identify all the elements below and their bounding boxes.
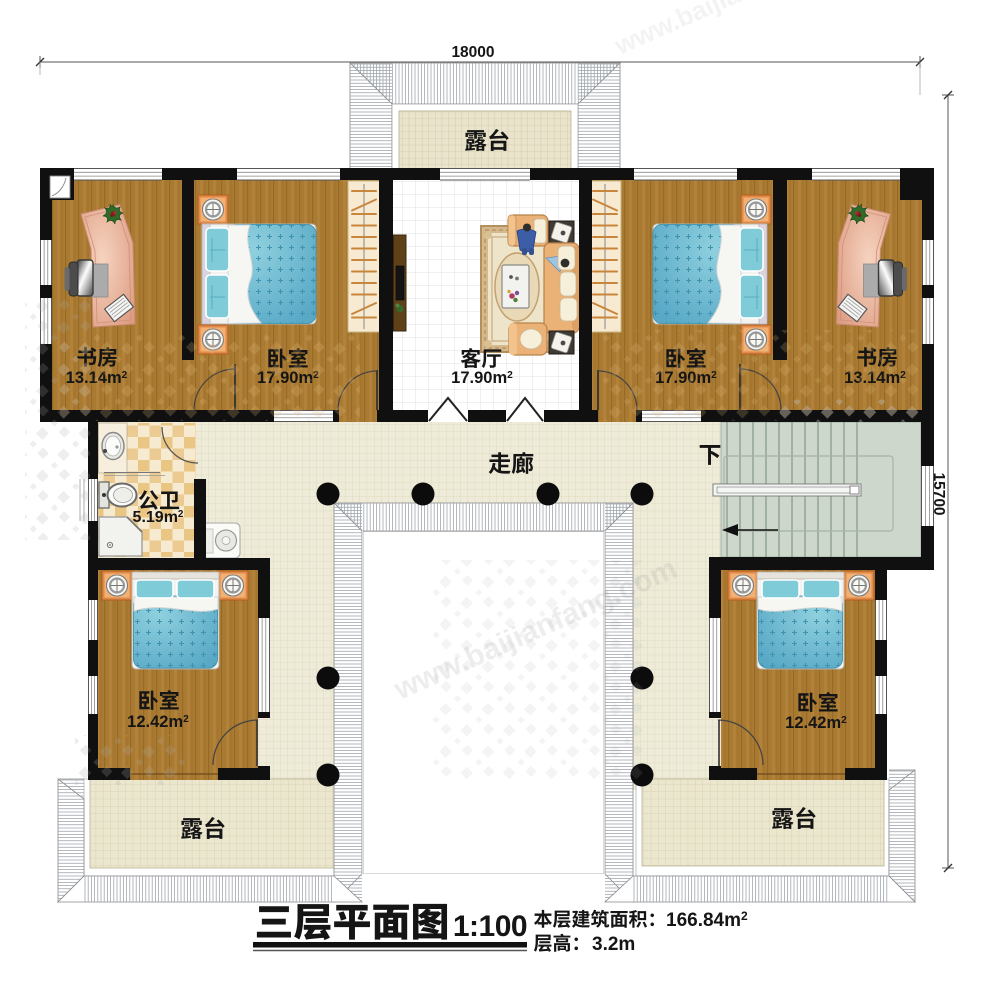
svg-text:5.19m2: 5.19m2 (133, 509, 184, 526)
svg-text:166.84m2: 166.84m2 (666, 909, 748, 931)
svg-text:3.2m: 3.2m (592, 934, 635, 955)
svg-text:17.90m2: 17.90m2 (451, 369, 513, 387)
svg-text:18000: 18000 (451, 44, 494, 61)
svg-text:12.42m2: 12.42m2 (127, 713, 189, 731)
svg-text:12.42m2: 12.42m2 (785, 714, 847, 732)
svg-text:1:100: 1:100 (453, 910, 527, 943)
